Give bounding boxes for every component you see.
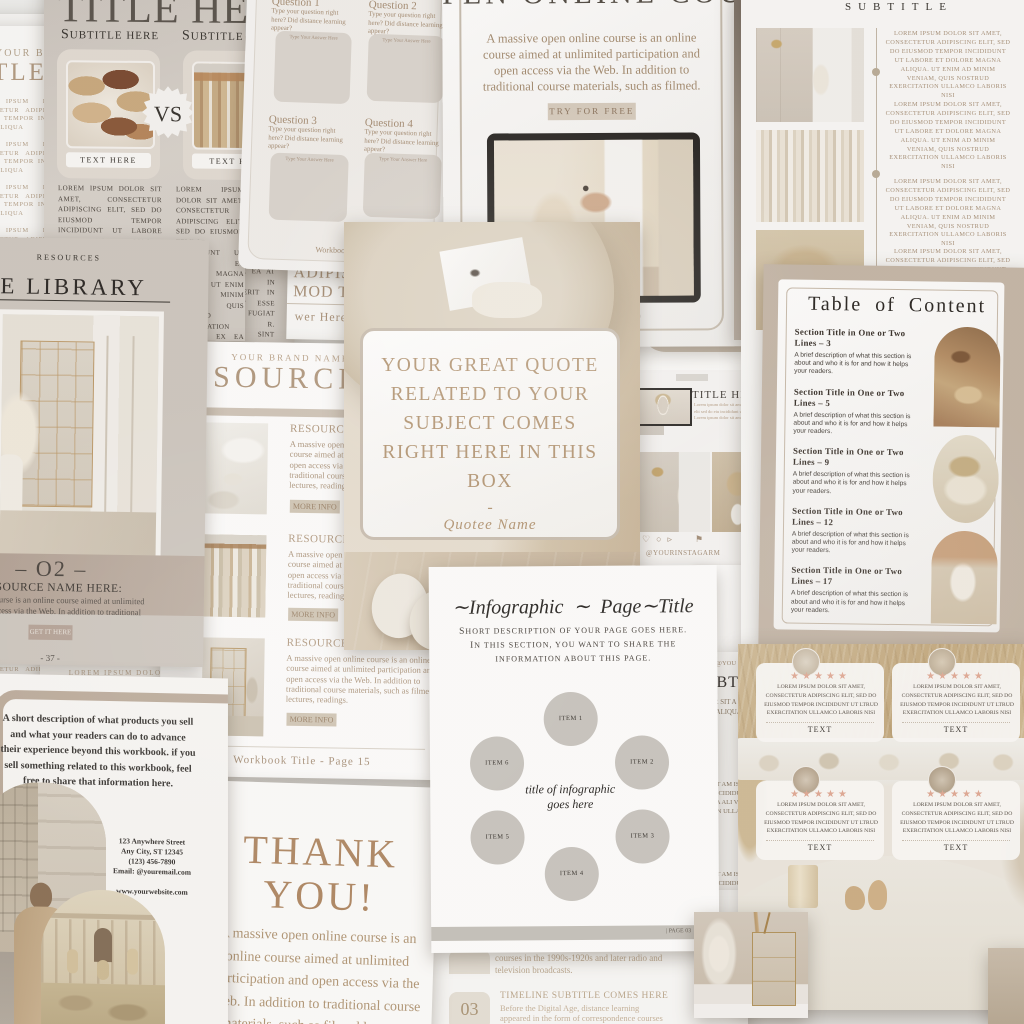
svg-text:VS: VS <box>154 101 182 126</box>
